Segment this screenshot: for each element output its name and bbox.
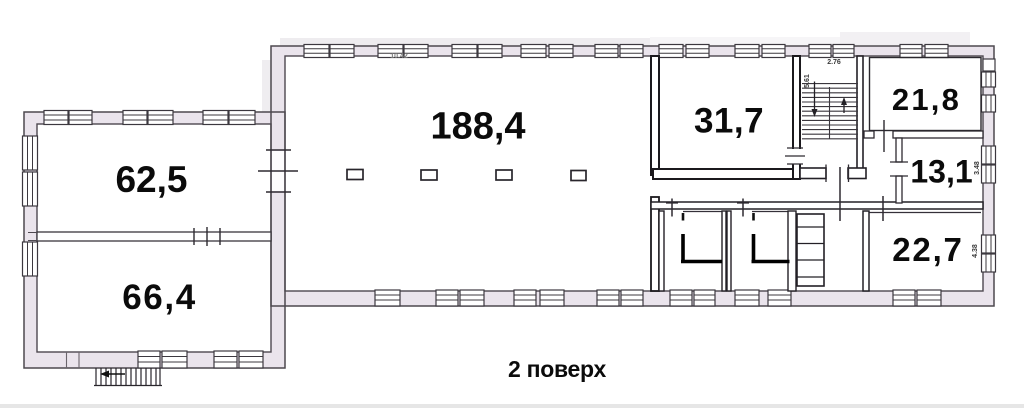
svg-text:21,8: 21,8 (892, 82, 961, 117)
svg-text:31,7: 31,7 (694, 102, 764, 141)
svg-text:2 поверх: 2 поверх (508, 356, 606, 382)
svg-text:22,7: 22,7 (892, 231, 963, 268)
svg-text:2.76: 2.76 (827, 59, 841, 66)
svg-text:4.38: 4.38 (972, 244, 979, 258)
svg-text:13,1: 13,1 (910, 154, 972, 190)
svg-text:3.48: 3.48 (974, 161, 981, 175)
svg-text:66,4: 66,4 (122, 278, 197, 317)
svg-text:62,5: 62,5 (115, 159, 187, 200)
svg-text:10.42: 10.42 (390, 53, 408, 60)
svg-text:5.61: 5.61 (804, 74, 811, 88)
svg-text:188,4: 188,4 (430, 106, 525, 148)
